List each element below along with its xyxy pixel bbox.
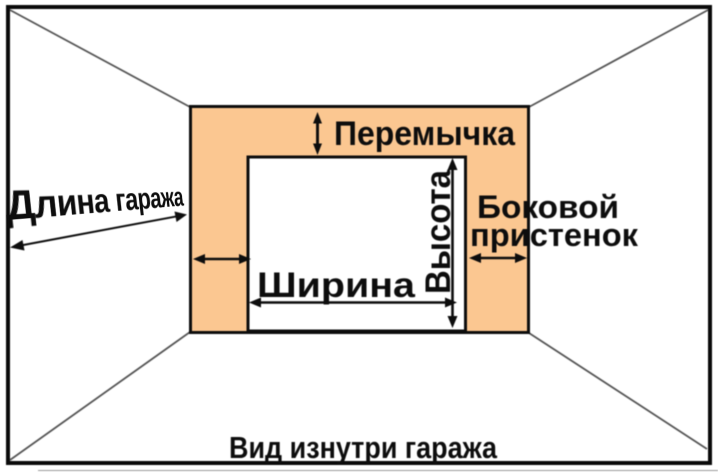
svg-text:Перемычка: Перемычка <box>334 115 516 153</box>
svg-text:Высота: Высота <box>419 170 458 294</box>
svg-text:пристенок: пристенок <box>470 217 639 253</box>
svg-text:Вид изнутри гаража: Вид изнутри гаража <box>229 430 498 465</box>
svg-text:Ширина: Ширина <box>257 266 416 305</box>
